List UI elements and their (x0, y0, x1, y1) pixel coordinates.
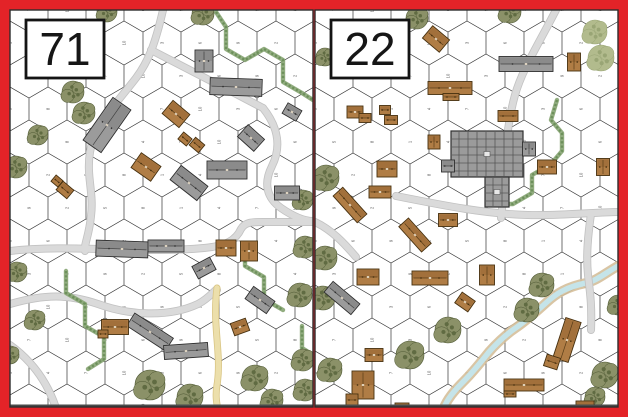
wooden-building (241, 241, 258, 261)
stone-factory (451, 131, 523, 177)
wooden-building (439, 214, 458, 227)
wooden-building (346, 394, 358, 406)
board-number: 71 (39, 23, 90, 75)
stone-building (499, 57, 553, 72)
wooden-building (216, 240, 236, 256)
hex-number: 10 (46, 304, 51, 309)
hex-number: 10 (446, 73, 451, 78)
wooden-building (498, 111, 518, 122)
wooden-building (385, 116, 398, 125)
stone-building (275, 186, 300, 200)
hex-number: 10 (274, 172, 279, 177)
dirt-road (216, 288, 219, 410)
wooden-building (98, 330, 108, 338)
wooden-building (538, 160, 557, 174)
wooden-building (568, 53, 581, 71)
wooden-building (377, 161, 397, 177)
hex-number: 10 (427, 370, 432, 375)
wooden-building (443, 94, 459, 101)
board-71: 4710369258114710369258147103692558147103… (0, 0, 352, 417)
wooden-building (597, 159, 610, 176)
board-number: 22 (344, 23, 395, 75)
board-22-label-box: 22 (331, 20, 409, 78)
wooden-building (365, 349, 383, 362)
stone-building (195, 50, 213, 72)
hex-number: 10 (65, 337, 70, 342)
stone-factory (485, 177, 509, 207)
wooden-building (369, 186, 391, 198)
wooden-building (380, 106, 391, 115)
stone-building (148, 240, 184, 252)
hex-number: 10 (122, 40, 127, 45)
stone-building (96, 240, 149, 258)
hex-number: 10 (579, 172, 584, 177)
screenshot-root: 4710369258114710369258147103692558147103… (0, 0, 628, 417)
stone-building (210, 78, 263, 97)
stone-building (207, 161, 247, 179)
wooden-building (428, 135, 440, 149)
board-71-label-box: 71 (26, 20, 104, 78)
wooden-building (412, 271, 448, 285)
hex-number: 10 (370, 337, 375, 342)
stone-building (442, 160, 455, 172)
board-22: 4710369258114710369258147103692558147103… (277, 0, 628, 417)
stone-building (164, 342, 209, 359)
hex-number: 10 (122, 370, 127, 375)
wooden-building (357, 269, 379, 285)
hex-number: 10 (198, 106, 203, 111)
wooden-building (428, 82, 472, 95)
hex-number: 10 (217, 139, 222, 144)
wooden-building (359, 114, 371, 123)
map-canvas: 4710369258114710369258147103692558147103… (0, 0, 628, 417)
wooden-building (480, 265, 495, 285)
wooden-building (504, 391, 516, 397)
stone-building (523, 142, 536, 156)
wooden-building (504, 379, 544, 391)
